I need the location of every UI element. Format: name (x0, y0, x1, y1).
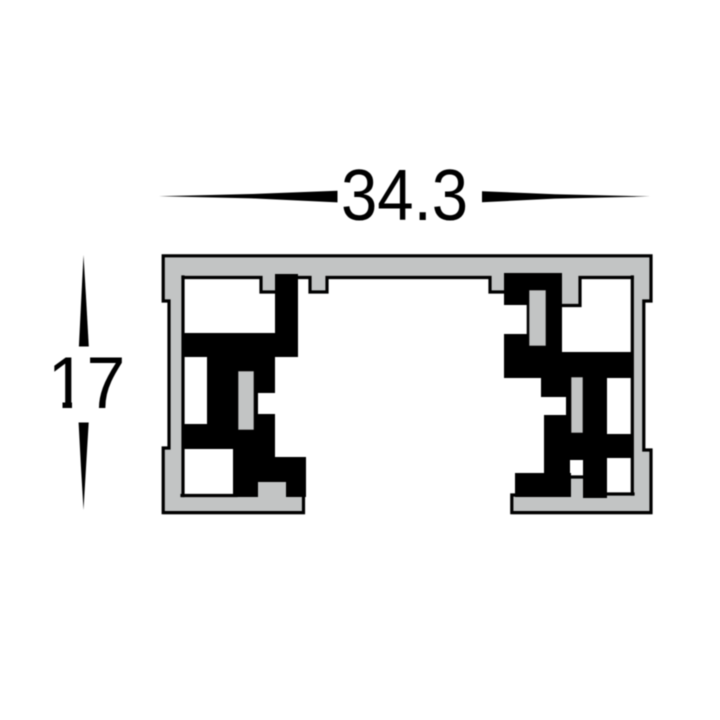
svg-text:34.3: 34.3 (341, 155, 468, 236)
svg-text:17: 17 (48, 342, 126, 424)
